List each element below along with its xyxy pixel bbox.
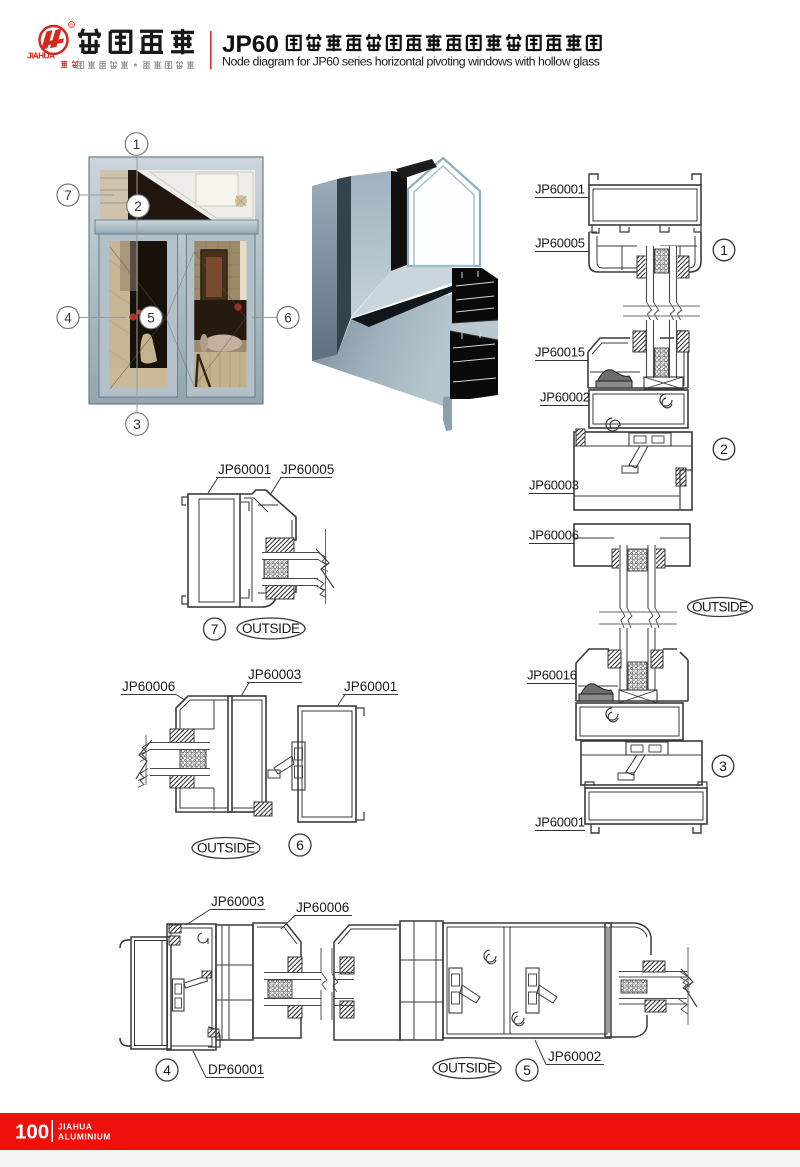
svg-text:JP60003: JP60003 (211, 894, 264, 909)
svg-text:1: 1 (720, 242, 728, 258)
svg-text:JP60001: JP60001 (344, 679, 397, 694)
svg-text:JP60003: JP60003 (248, 667, 301, 682)
svg-text:2: 2 (134, 199, 142, 214)
svg-text:JP60005: JP60005 (281, 462, 334, 477)
svg-text:DP60001: DP60001 (208, 1062, 264, 1077)
svg-text:JP60006: JP60006 (122, 679, 175, 694)
svg-text:JIAHUA: JIAHUA (58, 1122, 93, 1132)
svg-text:JP60003: JP60003 (529, 478, 579, 493)
svg-text:4: 4 (64, 310, 72, 325)
svg-text:3: 3 (719, 758, 727, 774)
svg-text:JP60001: JP60001 (535, 815, 585, 830)
svg-text:Node diagram for JP60 series h: Node diagram for JP60 series horizontal … (222, 55, 600, 69)
svg-text:OUTSIDE: OUTSIDE (438, 1061, 496, 1076)
svg-text:2: 2 (720, 441, 728, 457)
svg-text:6: 6 (284, 310, 292, 325)
svg-text:100: 100 (15, 1121, 49, 1144)
svg-text:OUTSIDE: OUTSIDE (242, 621, 300, 636)
svg-text:JP60016: JP60016 (527, 668, 577, 683)
svg-text:JP60002: JP60002 (548, 1049, 601, 1064)
svg-text:JP60002: JP60002 (540, 390, 590, 405)
svg-text:3: 3 (133, 417, 141, 432)
svg-text:OUTSIDE: OUTSIDE (197, 841, 255, 856)
svg-text:5: 5 (523, 1062, 531, 1078)
svg-text:JP60001: JP60001 (218, 462, 271, 477)
svg-text:OUTSIDE: OUTSIDE (692, 600, 748, 615)
svg-text:JP60005: JP60005 (535, 236, 585, 251)
svg-text:JP60001: JP60001 (535, 182, 585, 197)
svg-text:6: 6 (296, 837, 304, 853)
svg-text:JIAHUA: JIAHUA (27, 51, 55, 61)
svg-text:1: 1 (133, 137, 141, 152)
svg-text:5: 5 (147, 310, 155, 325)
svg-text:4: 4 (163, 1062, 171, 1078)
svg-text:JP60006: JP60006 (529, 528, 579, 543)
svg-text:7: 7 (64, 188, 72, 203)
svg-text:JP60006: JP60006 (296, 900, 349, 915)
svg-text:ALUMINIUM: ALUMINIUM (58, 1132, 111, 1142)
svg-text:JP60015: JP60015 (535, 345, 585, 360)
svg-text:7: 7 (211, 621, 219, 637)
